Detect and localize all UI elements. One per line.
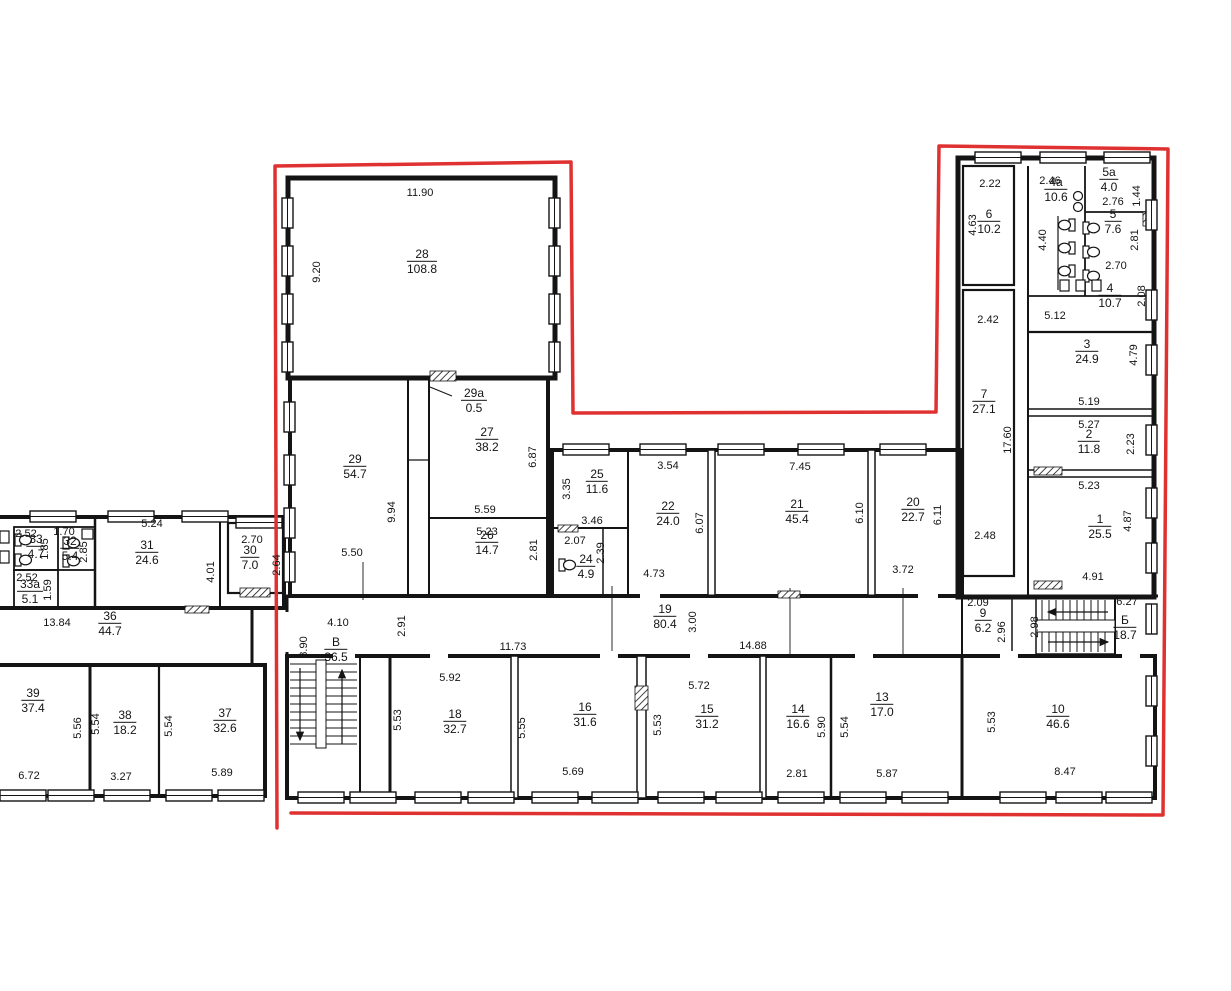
stairs-v	[290, 660, 357, 748]
floor-plan: 28 108.8 29a 0.5 29 54.7 27 38.2 26 14.7…	[0, 0, 1231, 991]
windows	[0, 152, 1157, 803]
main-building-walls	[285, 158, 1158, 798]
floor-plan-drawing	[0, 0, 1231, 991]
hatched-openings	[185, 212, 1154, 710]
left-wing-walls	[0, 517, 284, 796]
stairs-b	[1036, 598, 1115, 654]
